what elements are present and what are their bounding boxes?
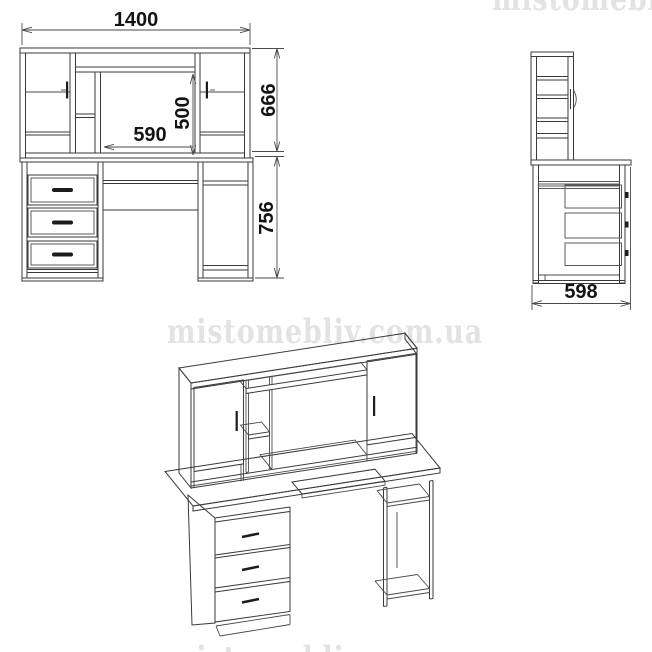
hutch-top-panel (20, 48, 250, 53)
hutch-bottom-shelf (26, 153, 245, 158)
front-desk (20, 158, 253, 281)
left-door-handle-icon (66, 82, 68, 99)
column-shelf (76, 114, 96, 118)
watermark-text-top-tile: mistomebliv.com.ua (492, 0, 652, 19)
iso-left-door-handle-icon (236, 411, 238, 431)
drawer-1 (28, 175, 97, 205)
technical-drawing: mistomebliv.com.ua mistomebliv.com.ua mi… (0, 0, 652, 652)
drawer-3-handle-icon (52, 253, 73, 257)
divider-mid (95, 72, 101, 153)
iso-drawer-handles (242, 534, 259, 603)
hutch-left-panel (20, 53, 26, 158)
blueprint-page: mistomebliv.com.ua mistomebliv.com.ua mi… (0, 0, 652, 652)
dimension-hutch-height: 666 (258, 83, 280, 116)
drawer-3 (28, 241, 97, 268)
iso-desk (165, 434, 440, 637)
right-pedestal-right-panel (248, 162, 253, 278)
drawer-2 (28, 208, 97, 237)
dimension-overall-width: 1400 (114, 9, 159, 31)
dimension-niche-width: 590 (133, 124, 166, 146)
side-drawer-box-2 (565, 213, 622, 238)
dimension-depth: 598 (564, 281, 597, 303)
keyboard-tray (103, 181, 198, 184)
right-pedestal-left-panel (198, 162, 203, 278)
hutch-right-panel (245, 53, 251, 158)
right-door-handle-icon (206, 82, 208, 99)
iso-right-pedestal (375, 481, 433, 607)
dimension-desk-height: 756 (256, 201, 278, 234)
left-door (26, 53, 71, 132)
divider-left (70, 53, 76, 153)
watermark-text-bottom-tile: mistomebliv.com.ua (167, 639, 483, 652)
niche-top-shelf (76, 67, 196, 72)
side-drawer-box-3 (565, 243, 622, 266)
side-hutch (531, 52, 576, 160)
dimension-niche-height: 500 (172, 96, 194, 129)
drawer-1-handle-icon (52, 188, 73, 192)
desktop (20, 158, 253, 162)
iso-hutch (179, 333, 417, 488)
divider-right (195, 53, 200, 153)
desk-left-panel (22, 162, 27, 278)
iso-right-door-handle-icon (373, 396, 375, 416)
drawer-2-handle-icon (52, 221, 73, 225)
iso-drawer-1 (215, 512, 290, 556)
side-view: 598 (531, 52, 631, 310)
isometric-view (165, 333, 440, 636)
side-desk (531, 160, 631, 284)
front-view: 1400 666 756 590 500 (20, 9, 284, 281)
